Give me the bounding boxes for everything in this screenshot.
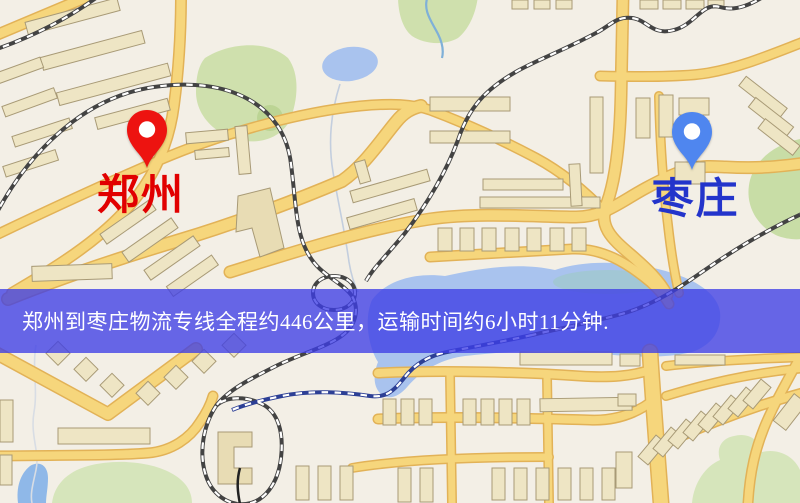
map-pin-icon: [124, 108, 170, 170]
map-view: 郑州 枣庄 郑州到枣庄物流专线全程约446公里，运输时间约6小时11分钟.: [0, 0, 800, 503]
origin-pin[interactable]: [124, 108, 170, 175]
route-info-text: 郑州到枣庄物流专线全程约446公里，运输时间约6小时11分钟.: [0, 306, 609, 336]
destination-city-label: 枣庄: [638, 179, 753, 221]
route-info-banner: 郑州到枣庄物流专线全程约446公里，运输时间约6小时11分钟.: [0, 289, 800, 353]
map-pin-icon: [669, 110, 715, 172]
destination-pin[interactable]: [669, 110, 715, 177]
origin-city-label: 郑州: [86, 175, 196, 217]
map-canvas[interactable]: [0, 0, 800, 503]
